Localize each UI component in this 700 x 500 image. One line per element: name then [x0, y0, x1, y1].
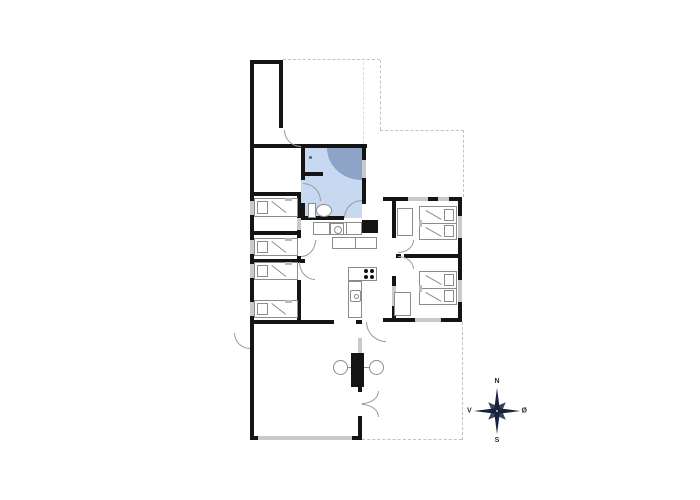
- duvet-fold: [426, 275, 442, 285]
- window: [408, 197, 428, 201]
- burner: [370, 275, 374, 279]
- terrace-outline-top: [380, 60, 381, 130]
- window: [458, 216, 462, 238]
- bed-divider: [420, 288, 456, 289]
- terrace-outline-bottom: [462, 322, 463, 440]
- compass-south-label: S: [495, 437, 500, 444]
- single-bed: [254, 262, 298, 280]
- compass-rose: N S V Ø: [467, 378, 527, 444]
- wood-stove-icon: [351, 353, 364, 387]
- single-bed: [254, 300, 298, 318]
- window: [438, 197, 449, 201]
- sink-icon: [350, 290, 361, 302]
- washing-machine-icon: [330, 223, 344, 235]
- bed-divider: [420, 223, 456, 224]
- wall: [250, 144, 367, 148]
- pillow: [257, 241, 268, 253]
- wall: [250, 60, 254, 144]
- wall: [356, 320, 362, 324]
- terrace-outline-top: [463, 130, 464, 197]
- floor-plan-canvas: N S V Ø: [0, 0, 700, 500]
- wall: [404, 254, 458, 258]
- stove-flue-ring: [333, 360, 348, 375]
- terrace-outline-top: [380, 130, 464, 131]
- french-door-arc: [362, 404, 379, 417]
- terrace-outline-top: [283, 59, 380, 60]
- floor-drain-icon: [309, 156, 312, 159]
- entry-door-arc: [234, 333, 250, 349]
- wardrobe: [397, 208, 413, 236]
- wall-chimney-block: [362, 220, 378, 233]
- bed-size-label: [285, 300, 292, 303]
- duvet-fold: [426, 292, 442, 302]
- duvet-fold: [271, 241, 286, 253]
- sideboard: [332, 237, 377, 249]
- french-door-arc: [362, 391, 379, 404]
- compass-east-label: Ø: [522, 408, 527, 415]
- compass-north-label: N: [494, 378, 499, 385]
- bed-size-label: [419, 285, 422, 292]
- door-opening: [297, 218, 301, 230]
- wall: [250, 231, 301, 235]
- compass-west-label: V: [467, 408, 472, 415]
- wall: [250, 320, 334, 324]
- window: [458, 280, 462, 302]
- cabinet-divider: [355, 238, 356, 248]
- terrace-outline-inner: [363, 62, 364, 144]
- sink-basin: [354, 294, 359, 299]
- cabinet-divider: [346, 223, 347, 234]
- cooktop-icon: [363, 268, 376, 280]
- wardrobe: [394, 292, 411, 316]
- wall: [301, 172, 323, 176]
- double-bed: [419, 206, 457, 240]
- window-panorama: [258, 436, 352, 440]
- pillow: [444, 274, 454, 286]
- duvet-fold: [426, 227, 442, 237]
- wall: [250, 192, 301, 196]
- single-bed: [254, 238, 298, 256]
- burner: [364, 269, 368, 273]
- compass-star-icon: [473, 387, 521, 435]
- burner: [364, 275, 368, 279]
- pillow: [257, 303, 268, 315]
- duvet-fold: [271, 201, 286, 213]
- pillow: [444, 290, 454, 302]
- bed-size-label: [285, 198, 292, 201]
- window: [415, 318, 441, 322]
- wall: [358, 416, 362, 440]
- door-arc: [299, 262, 315, 280]
- single-bed: [254, 198, 298, 217]
- toilet-icon: [316, 204, 332, 217]
- pillow: [257, 201, 268, 214]
- washer-drum: [334, 226, 342, 234]
- duvet-fold: [426, 210, 442, 220]
- wall: [392, 201, 396, 238]
- bed-size-label: [285, 262, 292, 265]
- window: [358, 338, 362, 353]
- toilet-tank: [308, 203, 316, 218]
- door-arc: [398, 240, 414, 253]
- terrace-outline-bottom: [362, 439, 462, 440]
- pillow: [444, 225, 454, 237]
- burner: [370, 269, 374, 273]
- door-arc-terrace: [366, 322, 386, 342]
- duvet-fold: [271, 265, 286, 277]
- window: [362, 160, 366, 178]
- pillow: [257, 265, 268, 277]
- double-bed: [419, 271, 457, 305]
- duvet-fold: [271, 303, 286, 315]
- bed-size-label: [419, 220, 422, 227]
- stove-flue-ring: [369, 360, 384, 375]
- bed-size-label: [285, 238, 292, 241]
- pillow: [444, 209, 454, 221]
- wall: [279, 60, 283, 128]
- door-arc: [301, 240, 316, 257]
